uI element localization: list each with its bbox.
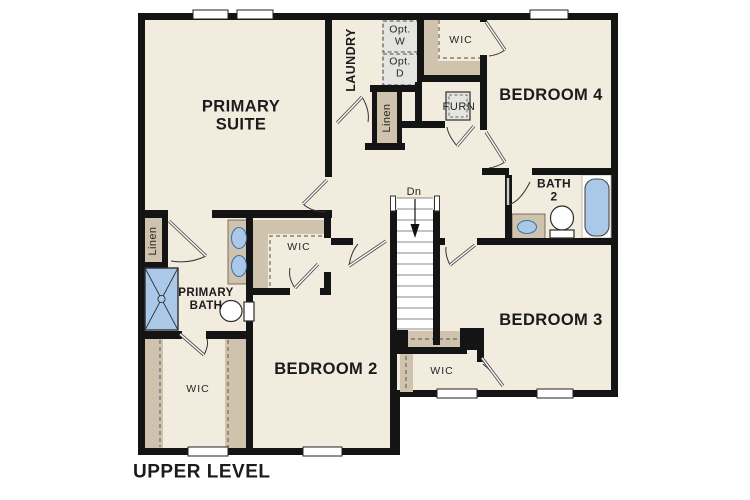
window	[530, 10, 568, 19]
wic-mid-shelf-left	[253, 234, 268, 288]
room-label-bath2: BATH 2	[537, 178, 571, 205]
window	[237, 10, 273, 19]
bathtub-icon	[585, 179, 609, 236]
label-wic-bedroom3: WIC	[430, 366, 453, 378]
label-furnace: FURN	[443, 101, 476, 113]
bath2-toilet-icon	[550, 206, 574, 238]
wic-top-shelf-bottom	[424, 61, 482, 75]
sink-icon	[232, 228, 247, 249]
room-label-bedroom4: BEDROOM 4	[499, 86, 603, 104]
label-linen-bath: Linen	[147, 227, 159, 256]
label-opt-dryer: Opt. D	[389, 56, 410, 80]
stair-rail	[435, 196, 440, 211]
window	[537, 389, 573, 398]
sink-icon	[232, 256, 247, 277]
window	[193, 10, 228, 19]
window	[303, 447, 342, 456]
label-wic-bedroom2: WIC	[186, 384, 209, 396]
window	[437, 389, 477, 398]
wic-br-shelf-top	[400, 331, 462, 347]
label-wic-primary: WIC	[287, 242, 310, 254]
room-label-bedroom3: BEDROOM 3	[499, 311, 603, 329]
room-label-bedroom2: BEDROOM 2	[274, 360, 378, 378]
floorplan: PRIMARY SUITE LAUNDRY Opt. W Opt. D Line…	[0, 0, 750, 500]
label-opt-washer: Opt. W	[389, 24, 410, 48]
label-wic-bedroom4: WIC	[449, 35, 472, 47]
plan-level-title: UPPER LEVEL	[133, 461, 270, 482]
stair-rail	[391, 196, 396, 211]
floorplan-canvas	[0, 0, 750, 500]
room-label-laundry: LAUNDRY	[344, 28, 358, 91]
label-stairs-dn: Dn	[407, 186, 422, 198]
window	[188, 447, 228, 456]
room-label-primary-suite: PRIMARY SUITE	[202, 98, 280, 135]
wic-mid-shelf-top	[253, 220, 324, 234]
shower-icon	[145, 268, 178, 330]
bath2-sink-icon	[518, 221, 537, 234]
label-linen-hall: Linen	[381, 104, 393, 133]
room-label-primary-bath: PRIMARY BATH	[178, 287, 233, 313]
